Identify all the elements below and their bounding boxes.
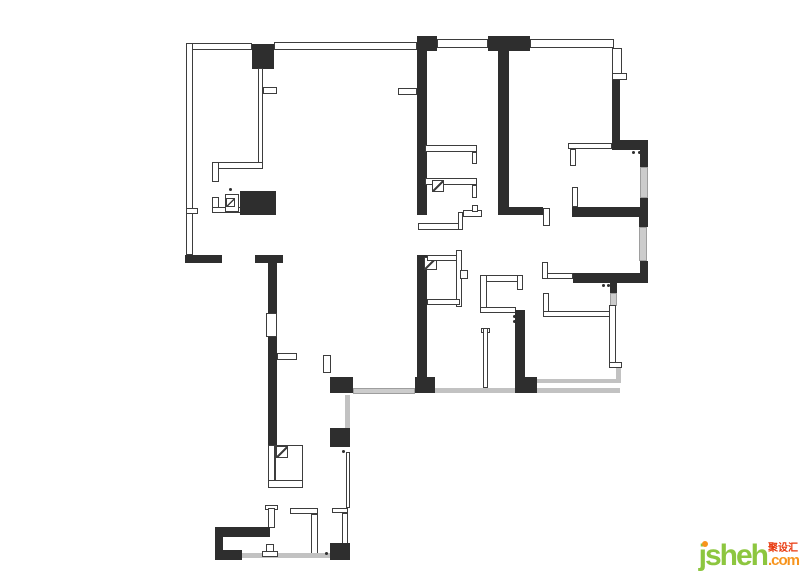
- thin-wall-segment: [517, 275, 523, 290]
- fixture-diagonal: [226, 198, 235, 207]
- wall-segment: [612, 140, 648, 150]
- thin-wall-segment: [547, 273, 573, 279]
- wall-segment: [515, 310, 525, 377]
- thin-wall-segment: [460, 270, 468, 279]
- fixture-diagonal: [432, 180, 444, 192]
- thin-wall-segment: [268, 508, 275, 528]
- wall-segment: [640, 150, 648, 167]
- thin-wall-segment: [311, 514, 318, 558]
- thin-wall-segment: [483, 328, 488, 388]
- thin-wall-segment: [268, 480, 303, 488]
- wall-segment: [515, 377, 537, 393]
- wall-segment: [417, 255, 427, 377]
- wall-segment: [255, 255, 283, 263]
- thin-wall-segment: [262, 551, 278, 557]
- thin-wall-segment: [609, 305, 616, 363]
- wall-segment: [417, 36, 437, 51]
- wall-segment: [498, 51, 509, 207]
- gray-line: [242, 553, 330, 558]
- gray-line: [537, 388, 620, 393]
- wall-segment: [498, 207, 543, 215]
- wall-segment: [573, 273, 647, 283]
- thin-wall-segment: [342, 513, 348, 544]
- wall-segment: [330, 543, 350, 560]
- thin-wall-segment: [472, 185, 477, 198]
- floorplan-canvas: [0, 0, 800, 571]
- window-segment: [639, 227, 647, 261]
- thin-wall-segment: [572, 187, 578, 207]
- detail-dot: [342, 450, 345, 453]
- thin-wall-segment: [418, 223, 463, 230]
- wall-segment: [252, 44, 274, 69]
- logo-side: 聚设汇 .com: [768, 544, 799, 569]
- watermark-logo[interactable]: jsheh 聚设汇 .com: [699, 537, 799, 569]
- thin-wall-segment: [186, 43, 193, 255]
- logo-com-suffix: .com: [768, 554, 799, 568]
- thin-wall-segment: [437, 39, 488, 48]
- thin-wall-segment: [258, 68, 263, 163]
- wall-segment: [268, 337, 277, 447]
- detail-dot: [602, 284, 605, 287]
- wall-segment: [639, 217, 648, 227]
- thin-wall-segment: [530, 39, 614, 48]
- logo-j-dot-icon: [702, 541, 708, 547]
- thin-wall-segment: [186, 43, 252, 50]
- wall-segment: [417, 51, 427, 215]
- detail-dot: [513, 315, 516, 318]
- gray-line: [345, 395, 350, 428]
- wall-segment: [610, 283, 617, 293]
- gray-line: [435, 388, 517, 393]
- thin-wall-segment: [323, 355, 331, 373]
- wall-segment: [330, 377, 353, 393]
- window-segment: [640, 167, 648, 198]
- thin-wall-segment: [480, 307, 516, 313]
- thin-wall-segment: [425, 145, 477, 152]
- wall-segment: [268, 263, 277, 313]
- gray-line: [537, 379, 620, 383]
- thin-wall-segment: [346, 452, 350, 508]
- detail-dot: [423, 185, 426, 188]
- wall-segment: [415, 377, 435, 393]
- floorplan-page: jsheh 聚设汇 .com: [0, 0, 800, 571]
- wall-segment: [240, 191, 276, 215]
- thin-wall-segment: [472, 205, 478, 212]
- thin-wall-segment: [612, 48, 622, 74]
- thin-wall-segment: [543, 311, 611, 317]
- thin-wall-segment: [570, 149, 576, 166]
- thin-wall-segment: [542, 262, 548, 279]
- thin-wall-segment: [263, 87, 277, 94]
- wall-segment: [215, 527, 270, 537]
- thin-wall-segment: [274, 42, 417, 50]
- thin-wall-segment: [427, 299, 460, 305]
- detail-dot: [632, 151, 635, 154]
- logo-text: jsheh: [699, 543, 767, 569]
- thin-wall-segment: [277, 353, 297, 360]
- thin-wall-segment: [543, 208, 550, 226]
- thin-wall-segment: [612, 73, 627, 80]
- thin-wall-segment: [186, 208, 198, 214]
- wall-segment: [215, 550, 242, 560]
- detail-dot: [229, 188, 232, 191]
- thin-wall-segment: [398, 88, 417, 95]
- thin-wall-segment: [472, 152, 477, 164]
- window-segment: [353, 388, 415, 394]
- wall-segment: [330, 428, 350, 447]
- detail-dot: [325, 552, 328, 555]
- wall-segment: [572, 207, 648, 217]
- thin-wall-segment: [212, 162, 219, 182]
- thin-wall-segment: [212, 162, 263, 169]
- thin-wall-segment: [266, 313, 277, 337]
- fixture-diagonal: [276, 446, 288, 458]
- wall-segment: [488, 36, 530, 51]
- wall-segment: [612, 80, 620, 141]
- detail-dot: [513, 320, 516, 323]
- wall-segment: [185, 255, 222, 263]
